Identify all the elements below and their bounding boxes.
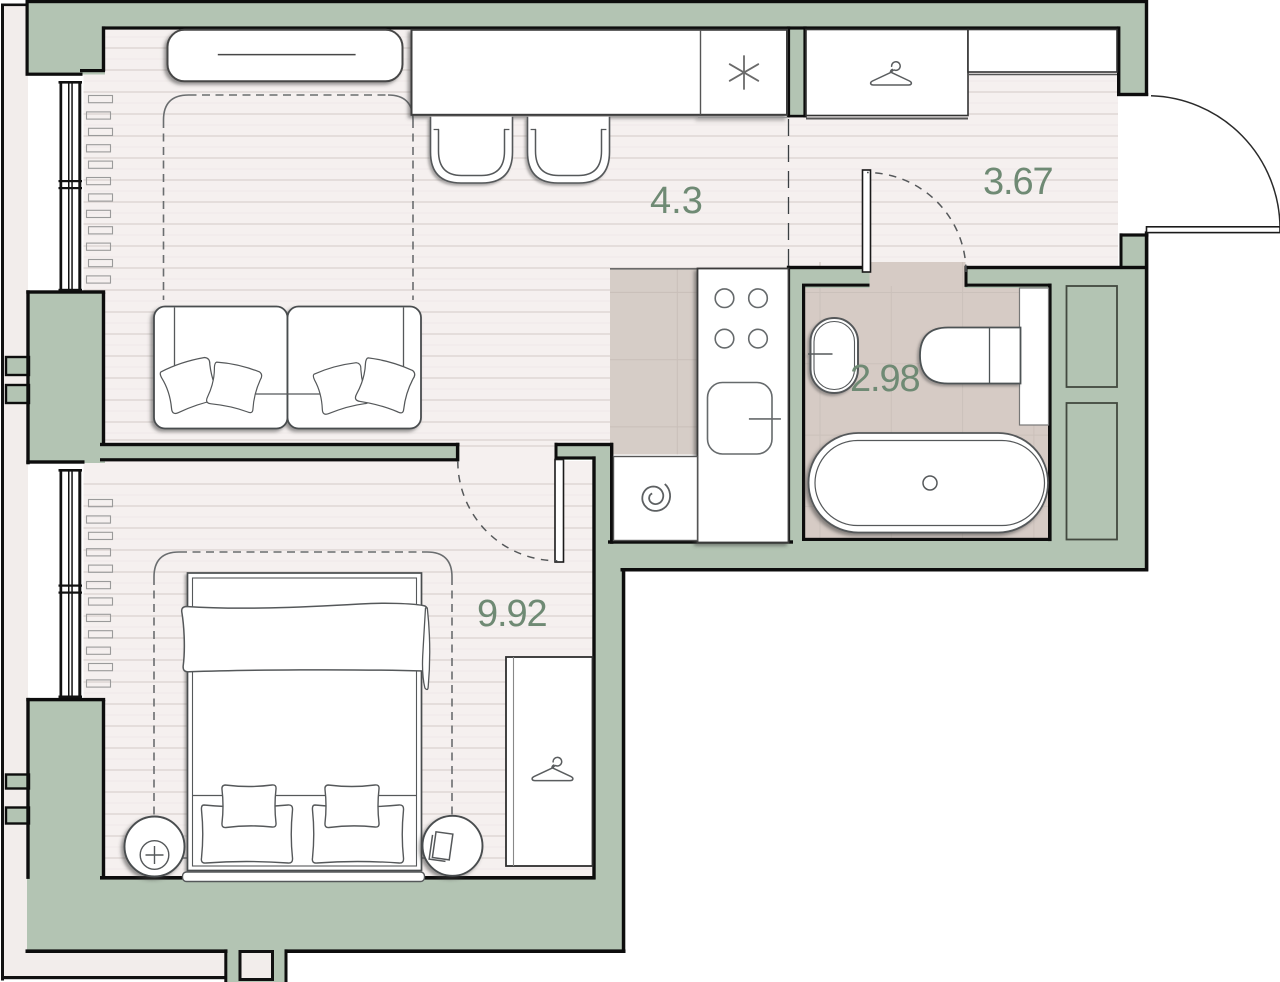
svg-text:4.3: 4.3 bbox=[650, 180, 703, 222]
svg-text:3.67: 3.67 bbox=[983, 161, 1053, 203]
svg-text:9.92: 9.92 bbox=[477, 593, 547, 635]
svg-text:2.98: 2.98 bbox=[850, 358, 920, 400]
